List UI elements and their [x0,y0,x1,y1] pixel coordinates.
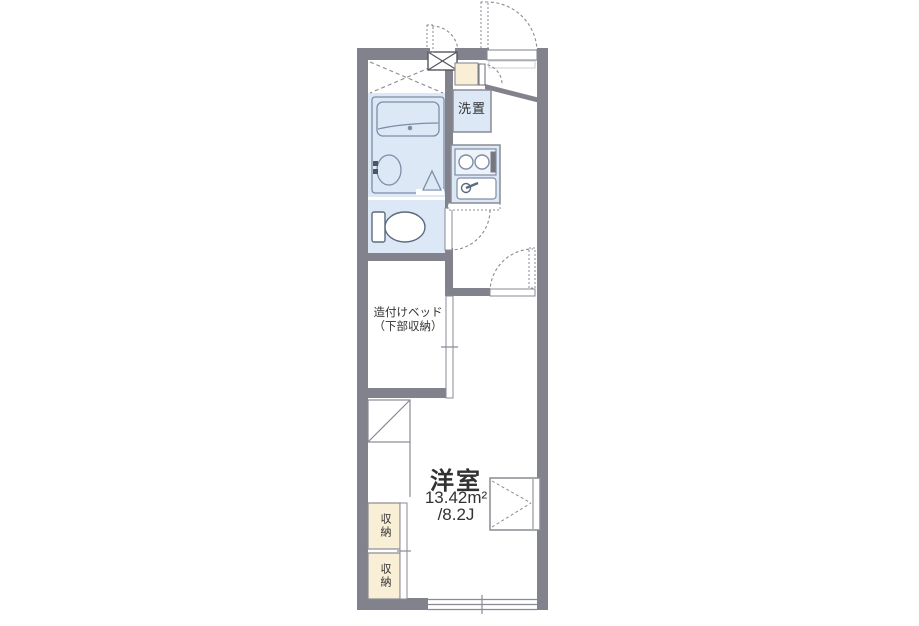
storage-lower-label: 収納 [377,563,391,589]
kitchen-sink-icon [457,178,496,199]
entrance-sill [489,61,535,68]
room-door-swing-arc [490,249,533,292]
wall-genkan-diagonal [485,84,540,103]
built-in-bed-label-line2: （下部収納） [348,320,468,334]
pipe-space-icon [428,52,457,70]
wall-top-mid [455,48,489,60]
toilet-door [445,203,500,250]
toilet-door-swing-arc [450,210,490,250]
built-in-bed-label-line1: 造付けベッド [348,306,468,320]
entrance-door [481,2,537,68]
storage-upper-label: 収納 [377,513,391,539]
stove-icon [455,149,496,175]
meter-box-door [427,25,458,52]
toilet-icon [372,212,425,242]
entrance-door-swing-arc [487,2,537,52]
wall-bed-bottom [357,388,447,398]
wall-top-left [357,48,430,60]
wall-toilet-bottom [357,253,453,261]
wall-room-door [445,288,490,296]
kitchen [451,145,500,203]
sliding-window-icon [428,595,537,614]
wall-bottom [357,598,428,610]
bathroom-floor [368,93,448,197]
entrance-step [455,63,478,85]
room-door [490,248,535,296]
floor-plan: 洗置 造付けベッド （下部収納） 洋室 13.42m² /8.2J 収納 収納 [0,0,919,626]
built-in-bed-label: 造付けベッド （下部収納） [348,306,468,334]
washing-machine-label: 洗置 [453,98,491,117]
room-area-tatami: /8.2J [396,505,516,525]
